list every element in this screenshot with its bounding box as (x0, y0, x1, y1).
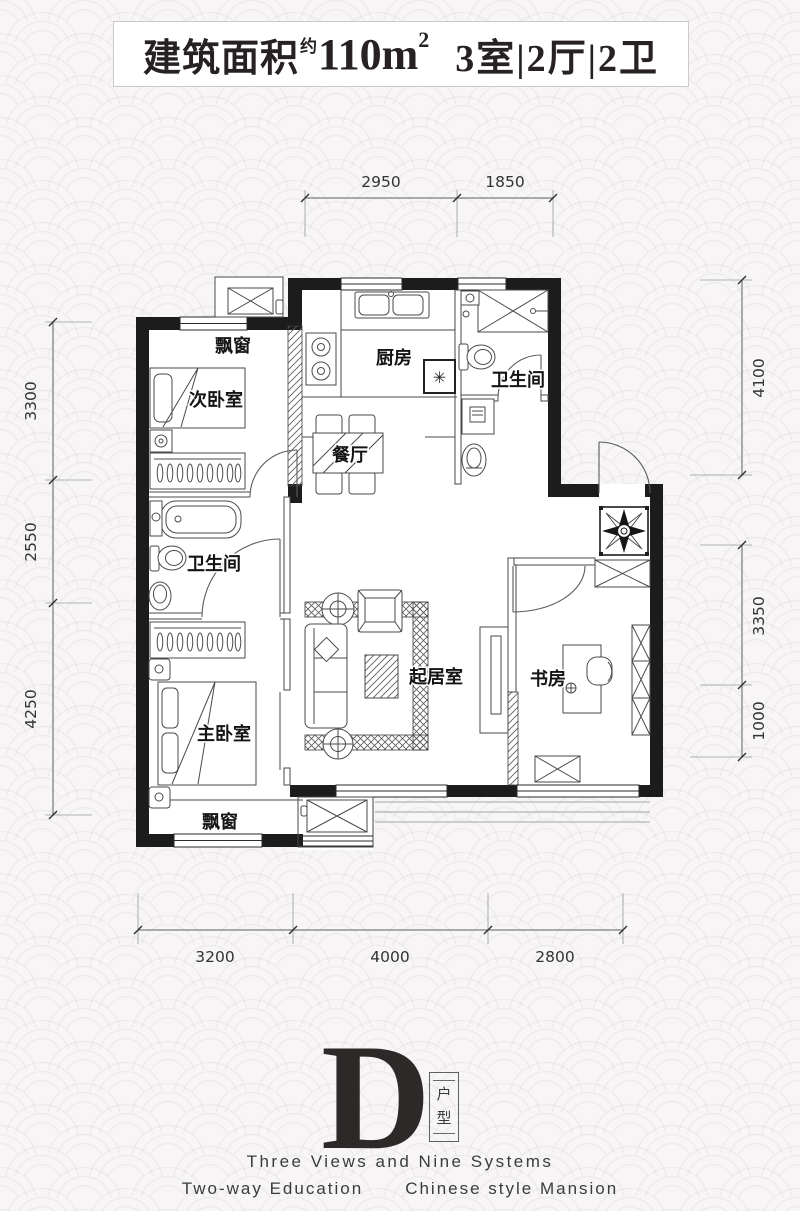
kitchen-sink (355, 292, 429, 319)
nightstand-master-top (149, 659, 170, 680)
appliance-symbol: ✳ (433, 368, 446, 387)
dim-right-3: 1000 (750, 701, 768, 740)
slogan-line1: Three Views and Nine Systems (0, 1152, 800, 1172)
page-background: { "title": { "prefix": "建筑面积", "approx":… (0, 0, 800, 1211)
dim-bottom-3: 2800 (535, 948, 574, 966)
room-label-bath-left: 卫生间 (187, 553, 241, 574)
dim-left-3: 4250 (22, 689, 40, 728)
armchair (358, 590, 402, 632)
wardrobe-master (150, 622, 245, 658)
toilet-left-bath (150, 546, 186, 571)
slogan-line2-left: Two-way Education (182, 1179, 363, 1198)
tv-panel (480, 627, 508, 733)
dimension-top: 2950 1850 (301, 173, 557, 237)
dimension-left: 3300 2550 4250 (22, 318, 92, 819)
rug (365, 655, 398, 698)
dimension-bottom: 3200 4000 2800 (134, 893, 627, 966)
room-label-study: 书房 (530, 668, 566, 689)
room-label-bay-top: 飘窗 (215, 335, 251, 356)
cabinet-x-foyer (595, 560, 650, 587)
dim-right-2: 3350 (750, 596, 768, 635)
wardrobe-secondary (150, 453, 245, 489)
room-label-kitchen: 厨房 (376, 347, 412, 368)
bookshelf (632, 625, 650, 735)
stove-icon (306, 333, 336, 385)
sofa (305, 624, 347, 728)
compass-decor-icon (599, 506, 649, 556)
room-label-master-bedroom: 主卧室 (197, 723, 251, 744)
dim-top-2: 1850 (485, 173, 524, 191)
dim-bottom-1: 3200 (195, 948, 234, 966)
unit-type-box: 户 型 (429, 1072, 459, 1142)
unit-type-char-top: 户 (436, 1083, 451, 1107)
room-label-secondary-bedroom: 次卧室 (189, 389, 243, 410)
slogan-block: Three Views and Nine Systems Two-way Edu… (0, 1152, 800, 1199)
basin-left-bath (149, 582, 171, 610)
dim-left-1: 3300 (22, 381, 40, 420)
type-box-rule-bottom (433, 1133, 455, 1134)
unit-letter: D (321, 1021, 431, 1173)
washer-icon (462, 399, 494, 434)
basin-top-bath (462, 444, 486, 476)
desk-chair (587, 657, 612, 685)
round-table-bottom (323, 729, 353, 759)
dim-left-2: 2550 (22, 522, 40, 561)
type-box-rule-top (433, 1080, 455, 1081)
slogan-line2-right: Chinese style Mansion (405, 1179, 618, 1198)
room-label-dining: 餐厅 (331, 444, 368, 465)
unit-type-char-bottom: 型 (436, 1107, 451, 1131)
round-table-top (322, 593, 354, 625)
toilet-top-bath (459, 344, 495, 370)
terrace-lines (375, 802, 650, 822)
dim-bottom-2: 4000 (370, 948, 409, 966)
nightstand-secondary (150, 430, 172, 452)
fridge-icon: ✳ (424, 360, 455, 393)
slogan-line2: Two-way EducationChinese style Mansion (0, 1179, 800, 1199)
ac-unit (535, 756, 580, 782)
dim-top-1: 2950 (361, 173, 400, 191)
room-label-bath-top: 卫生间 (491, 369, 545, 390)
room-label-bay-bottom: 飘窗 (202, 811, 238, 832)
room-label-living: 起居室 (408, 666, 463, 687)
bay-box-bottom-base (298, 797, 373, 850)
dimension-right: 4100 3350 1000 (690, 276, 768, 761)
dim-right-1: 4100 (750, 358, 768, 397)
nightstand-master-bottom (149, 787, 170, 808)
